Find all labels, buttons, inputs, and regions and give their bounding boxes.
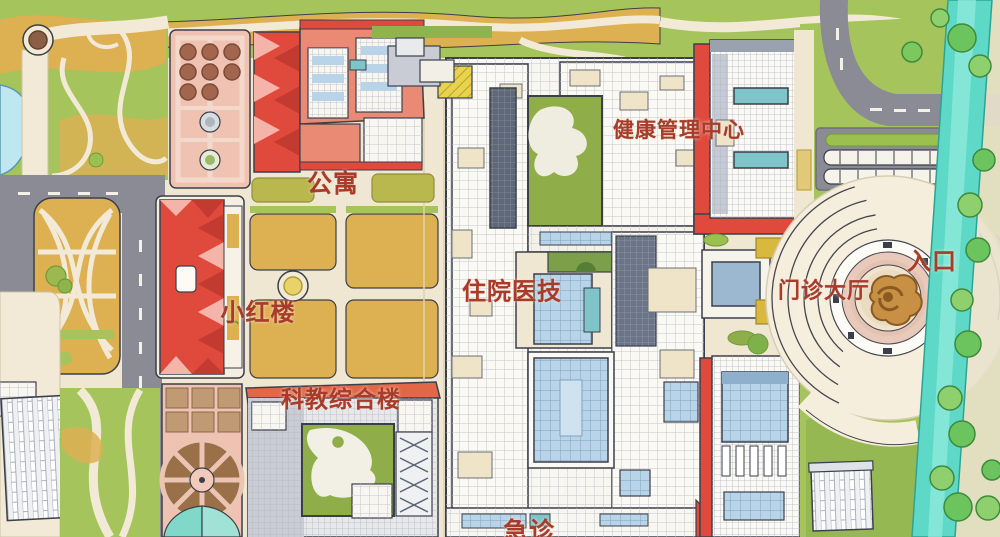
park-northwest [0,0,168,180]
label-little-red-building: 小红楼 [221,293,296,328]
label-inpatient-medtech: 住院医技 [462,272,562,307]
label-emergency: 急诊 [503,512,555,537]
labyrinth-garden-south [162,384,242,537]
label-entrance: 入口 [907,242,957,277]
little-red-building [156,196,244,378]
south-shed [809,461,875,531]
label-health-management-center: 健康管理中心 [613,114,745,144]
label-outpatient-hall: 门诊大厅 [778,273,870,305]
label-apartment: 公寓 [307,164,359,200]
rose-garden-north [170,30,250,188]
map-artwork [0,0,1000,537]
garden-southwest [60,388,160,537]
southeast-building [700,356,800,537]
label-sci-edu-complex: 科教综合楼 [281,380,401,414]
campus-map: 健康管理中心 公寓 住院医技 小红楼 门诊大厅 入口 科教综合楼 急诊 [0,0,1000,537]
